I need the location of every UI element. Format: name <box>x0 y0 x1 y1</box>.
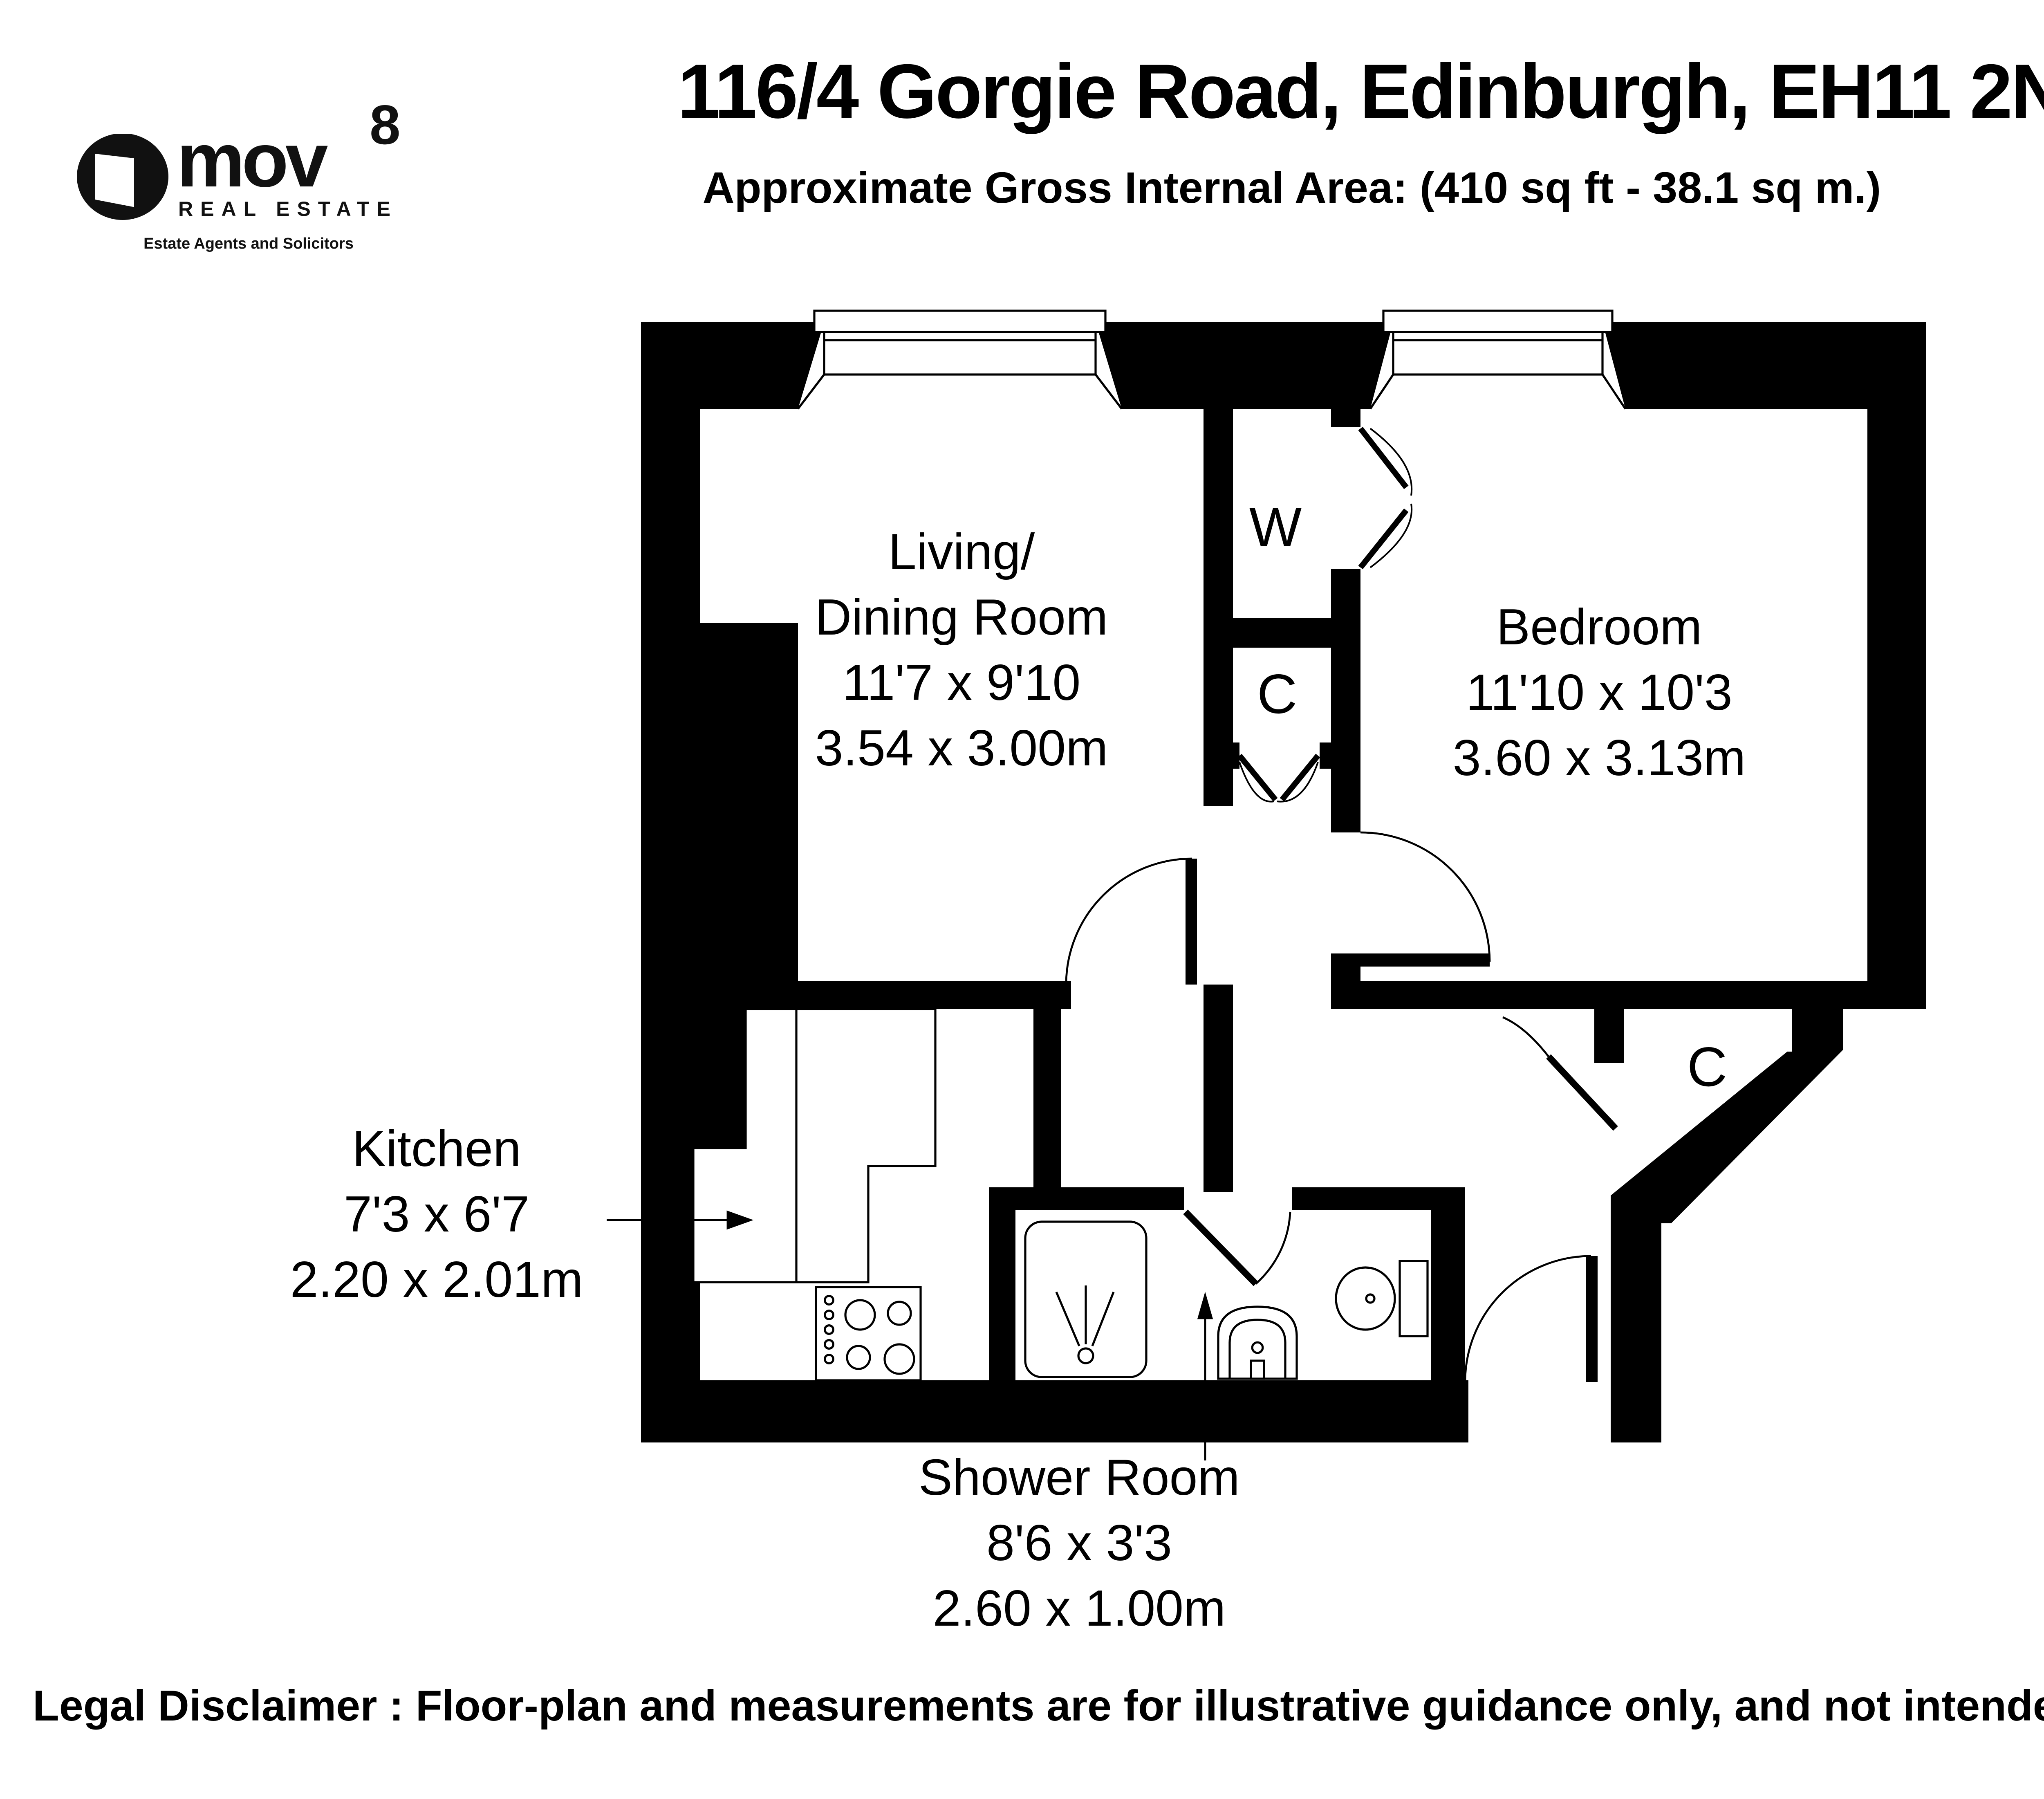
hall-cupboard-label: C <box>1671 1037 1743 1101</box>
hob-icon <box>816 1287 921 1380</box>
living-door-swing <box>1066 859 1192 983</box>
living-room-name-line1: Living/ <box>716 520 1207 585</box>
kitchen-metric: 2.20 x 2.01m <box>191 1248 682 1313</box>
basin-icon <box>1218 1307 1297 1379</box>
shower-room-label: Shower Room 8'6 x 3'3 2.60 x 1.00m <box>826 1446 1333 1642</box>
living-window-glazing <box>824 332 1096 375</box>
wall-shower-west <box>989 1210 1015 1380</box>
kitchen-label: Kitchen 7'3 x 6'7 2.20 x 2.01m <box>191 1117 682 1313</box>
cupboard-bifold-door <box>1239 756 1318 802</box>
shower-arrow-icon <box>1199 1295 1212 1318</box>
living-door-leaf <box>1186 859 1197 985</box>
basin-tap <box>1251 1361 1264 1379</box>
wall-cupboard-jamb-left <box>1228 742 1239 769</box>
shower-tray-icon <box>1025 1222 1146 1377</box>
shower-fixtures <box>1025 1222 1428 1379</box>
bedroom-window-glazing <box>1393 332 1602 375</box>
wall-bottom <box>641 1380 1468 1442</box>
wall-right <box>1867 322 1926 1009</box>
living-window-sill <box>814 311 1105 332</box>
wall-top-middle <box>1096 322 1393 409</box>
wall-shower-top-left <box>989 1187 1184 1210</box>
shower-room-name: Shower Room <box>826 1446 1333 1511</box>
hall-cupboard-door-leaf <box>1549 1057 1616 1128</box>
legal-disclaimer: Legal Disclaimer : Floor-plan and measur… <box>33 1681 2044 1732</box>
wall-cupboard-jamb-right <box>1320 742 1331 769</box>
wall-top-left <box>641 322 824 409</box>
wardrobe-label: W <box>1239 497 1311 561</box>
floorplan-page: mov 8 REAL ESTATE Estate Agents and Soli… <box>0 0 2044 1799</box>
wall-kitchen-pier <box>700 1009 746 1148</box>
shower-room-imperial: 8'6 x 3'3 <box>826 1511 1333 1577</box>
toilet-icon <box>1336 1261 1428 1336</box>
wall-entry-column <box>1611 1205 1661 1442</box>
kitchen-name: Kitchen <box>191 1117 682 1182</box>
entry-door-leaf <box>1586 1256 1598 1382</box>
wall-shower-east <box>1431 1187 1465 1382</box>
shower-door-swing <box>1256 1212 1290 1284</box>
wall-closet-right-c <box>1331 953 1360 1009</box>
shower-door-leaf <box>1186 1212 1256 1284</box>
toilet-cistern <box>1400 1261 1428 1336</box>
bedroom-imperial: 11'10 x 10'3 <box>1354 661 1845 726</box>
living-room-metric: 3.54 x 3.00m <box>716 716 1207 782</box>
bedroom-door-leaf <box>1360 953 1490 967</box>
shower-drain <box>1078 1348 1093 1363</box>
living-room-imperial: 11'7 x 9'10 <box>716 651 1207 716</box>
wall-kitchen-right <box>1033 1009 1061 1187</box>
wall-hall-cupboard-stub <box>1594 1009 1624 1063</box>
wall-wc-divider <box>1233 618 1331 648</box>
wall-living-kitchen-divider <box>641 981 1071 1009</box>
bedroom-metric: 3.60 x 3.13m <box>1354 726 1845 792</box>
bedroom-window-sill <box>1383 311 1612 332</box>
bedroom-door-swing <box>1360 832 1490 962</box>
cupboard-label: C <box>1241 664 1313 728</box>
living-room-label: Living/ Dining Room 11'7 x 9'10 3.54 x 3… <box>716 520 1207 782</box>
bedroom-label: Bedroom 11'10 x 10'3 3.60 x 3.13m <box>1354 595 1845 792</box>
wardrobe-bifold-leaf-top <box>1360 428 1406 487</box>
wardrobe-bifold-door <box>1360 428 1412 568</box>
living-room-name-line2: Dining Room <box>716 585 1207 651</box>
hall-cupboard-door-swing <box>1503 1017 1549 1057</box>
bedroom-name: Bedroom <box>1354 595 1845 661</box>
shower-room-metric: 2.60 x 1.00m <box>826 1577 1333 1642</box>
kitchen-imperial: 7'3 x 6'7 <box>191 1182 682 1248</box>
wall-closet-right-a <box>1331 409 1360 427</box>
wall-central-lower <box>1204 985 1233 1192</box>
entry-door-swing <box>1465 1256 1591 1382</box>
wall-bedroom-bottom <box>1360 981 1926 1009</box>
